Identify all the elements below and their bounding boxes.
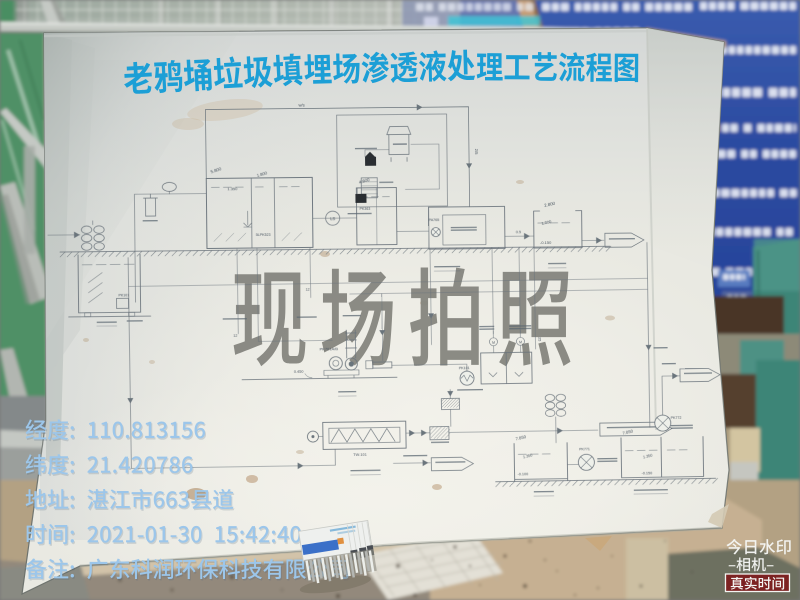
svg-text:PK363: PK363	[360, 207, 371, 211]
svg-text:25: 25	[537, 337, 541, 341]
svg-text:0.450: 0.450	[294, 370, 304, 374]
svg-text:2/5: 2/5	[474, 149, 479, 156]
svg-text:12: 12	[306, 288, 310, 292]
svg-text:M: M	[519, 340, 522, 344]
svg-text:-0.150: -0.150	[642, 471, 653, 475]
svg-text:LS: LS	[330, 216, 335, 221]
svg-text:1.350: 1.350	[227, 186, 238, 191]
svg-text:M: M	[492, 341, 495, 345]
svg-text:PK771: PK771	[579, 447, 590, 451]
svg-text:-0.100: -0.100	[518, 472, 529, 476]
svg-text:w/s: w/s	[298, 102, 304, 107]
svg-text:PK701A/B: PK701A/B	[320, 346, 339, 351]
svg-text:TW-101: TW-101	[353, 453, 366, 457]
svg-text:12: 12	[233, 334, 237, 338]
svg-text:5LPK523: 5LPK523	[256, 233, 271, 237]
svg-text:PA765: PA765	[429, 218, 440, 222]
svg-text:PK772: PK772	[671, 416, 682, 420]
svg-text:0.5: 0.5	[516, 230, 521, 234]
svg-text:PK101: PK101	[118, 293, 129, 297]
svg-text:-0.150: -0.150	[540, 240, 552, 245]
svg-text:PK101: PK101	[459, 366, 470, 370]
